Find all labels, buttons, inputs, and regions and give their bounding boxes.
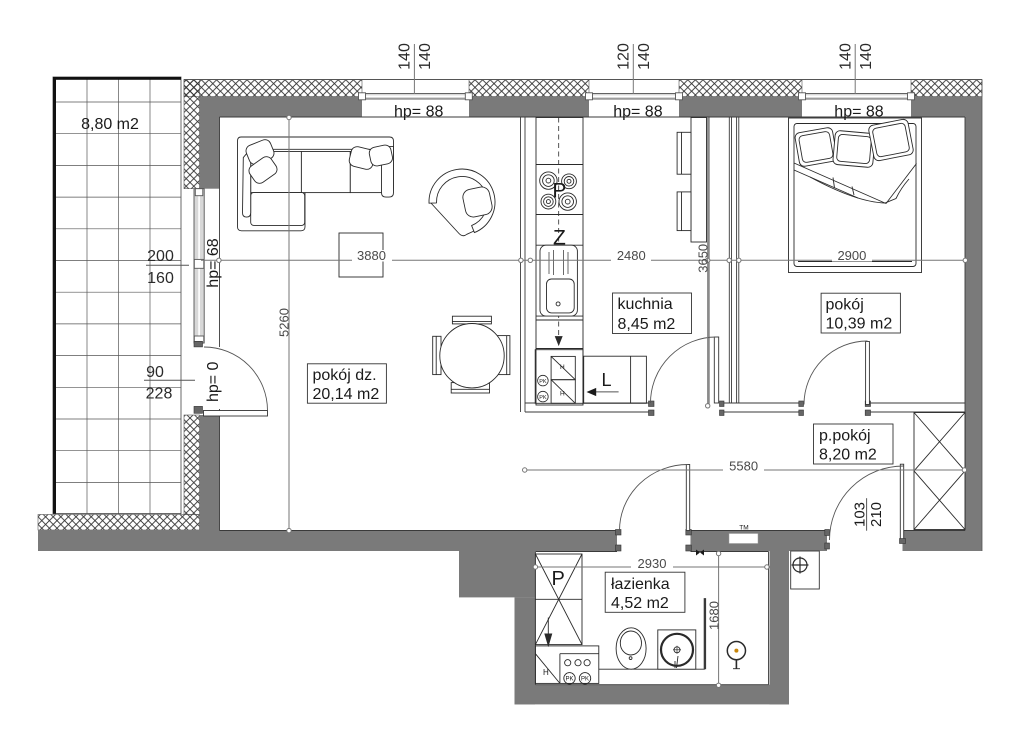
svg-text:H: H [543,668,549,677]
svg-text:p.pokój: p.pokój [819,428,871,445]
svg-text:hp= 88: hp= 88 [613,103,662,120]
svg-text:228: 228 [146,385,173,402]
svg-text:pokój dz.: pokój dz. [313,367,377,384]
svg-text:160: 160 [147,270,174,287]
svg-text:20,14 m2: 20,14 m2 [313,386,380,403]
svg-text:120: 120 [616,43,633,70]
svg-text:210: 210 [868,502,885,527]
svg-text:10,39 m2: 10,39 m2 [826,316,893,333]
svg-text:hp= 88: hp= 88 [394,103,443,120]
svg-text:103: 103 [852,502,869,527]
svg-text:4,52 m2: 4,52 m2 [611,595,669,612]
svg-text:3650: 3650 [695,244,710,273]
svg-text:8,80 m2: 8,80 m2 [81,116,139,133]
svg-text:140: 140 [397,43,414,70]
svg-text:200: 200 [147,248,174,265]
svg-text:łazienka: łazienka [611,576,670,593]
svg-text:PK: PK [539,379,547,385]
svg-text:PK: PK [539,395,547,401]
svg-text:pokój: pokój [826,297,864,314]
svg-text:hp= 88: hp= 88 [834,103,883,120]
svg-text:TM: TM [739,525,748,532]
svg-text:140: 140 [636,43,653,70]
svg-text:5260: 5260 [277,308,292,337]
svg-text:90: 90 [146,364,164,381]
svg-text:P: P [552,568,565,590]
svg-text:2930: 2930 [638,556,667,571]
svg-text:8,20 m2: 8,20 m2 [819,447,877,464]
svg-text:H: H [560,364,565,371]
svg-text:hp= 0: hp= 0 [205,361,222,402]
svg-text:3880: 3880 [357,248,386,263]
svg-text:140: 140 [858,43,875,70]
svg-text:hp= 68: hp= 68 [205,238,222,287]
svg-text:1680: 1680 [706,601,721,630]
svg-text:P: P [552,180,566,203]
svg-text:PK: PK [581,677,589,683]
svg-text:PK: PK [565,677,573,683]
svg-text:8,45 m2: 8,45 m2 [618,316,676,333]
svg-text:5580: 5580 [729,459,758,474]
svg-text:2900: 2900 [837,248,866,263]
svg-text:2480: 2480 [617,248,646,263]
svg-text:140: 140 [838,43,855,70]
svg-text:H: H [560,390,565,397]
svg-text:kuchnia: kuchnia [618,296,673,313]
svg-text:140: 140 [417,43,434,70]
svg-text:L: L [602,370,612,390]
